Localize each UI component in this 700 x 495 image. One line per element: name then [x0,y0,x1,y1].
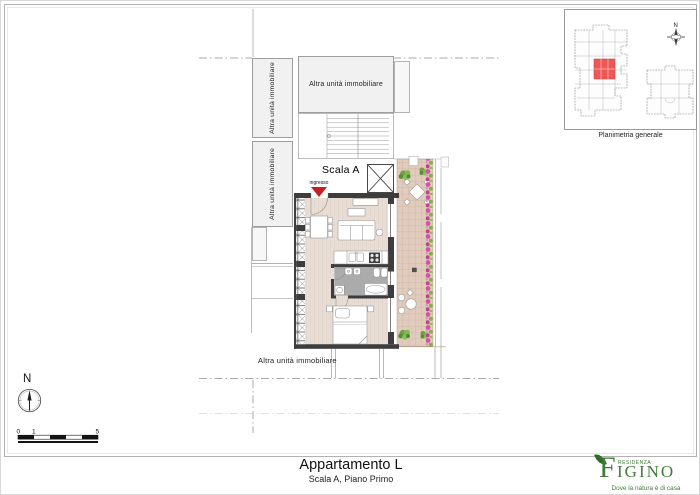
nightstand [327,306,333,312]
key-plan-highlight-unit [594,59,615,79]
stairwell [298,113,394,159]
key-plan-building-right [647,66,693,118]
coffee-table [348,209,365,217]
scale-tick-5: 5 [96,429,100,436]
key-plan: N [564,9,697,130]
neighbor-unit-label: Altra unità immobiliare [309,81,383,88]
sideboard [353,199,378,206]
north-compass-icon [16,387,43,414]
bidet [381,268,387,277]
terrace-drain [412,268,417,272]
entrance-marker-icon [311,187,327,197]
neighbor-slab-top-right [394,61,410,113]
bed [327,306,374,344]
neighbor-wall-line [252,266,293,267]
washing-machine [335,286,344,295]
entrance-label: ingresso [303,180,335,186]
kitchen [334,251,388,264]
neighbor-wall-line [251,227,252,333]
neighbor-unit-label: Altra unità immobiliare [269,62,276,134]
neighbor-wall-line [252,298,293,299]
key-plan-north-label: N [674,23,678,29]
page-subtitle: Scala A, Piano Primo [1,474,700,484]
plan-sheet: Altra unità immobiliare Altra unità immo… [0,0,700,495]
key-plan-compass-icon: N [667,23,685,46]
brand-logo: F RESIDENZA IGINO Dove la natura è di ca… [598,457,698,495]
terrace-planter [409,156,418,166]
neighbor-wall-line [252,263,293,264]
logo-initial: F [599,453,616,483]
terrace-flower-border [426,159,433,347]
neighbor-unit-lower-left: Altra unità immobiliare [252,141,293,227]
sofa [338,221,375,241]
page-title: Appartamento L [1,457,700,473]
floor-lamp [376,229,383,236]
neighbor-unit-upper-left: Altra unità immobiliare [252,58,293,138]
scale-tick-0: 0 [17,429,21,436]
neighbor-unit-label: Altra unità immobiliare [269,148,276,220]
north-label: N [23,373,31,385]
logo-tagline: Dove la natura è di casa [598,485,694,492]
neighbor-unit-top: Altra unità immobiliare [298,56,394,113]
scale-bar: 0 1 5 [15,427,105,447]
toilet [374,268,380,277]
neighbor-unit-label-bottom: Altra unità immobiliare [258,356,337,365]
neighbor-room-small [252,227,267,261]
terrace [394,156,449,347]
key-plan-caption: Planimetria generale [564,132,697,139]
hatched-wall [296,198,305,344]
scale-tick-1: 1 [32,429,36,436]
dining-table [306,216,333,238]
nightstand [368,306,374,312]
logo-name: IGINO [617,463,675,480]
